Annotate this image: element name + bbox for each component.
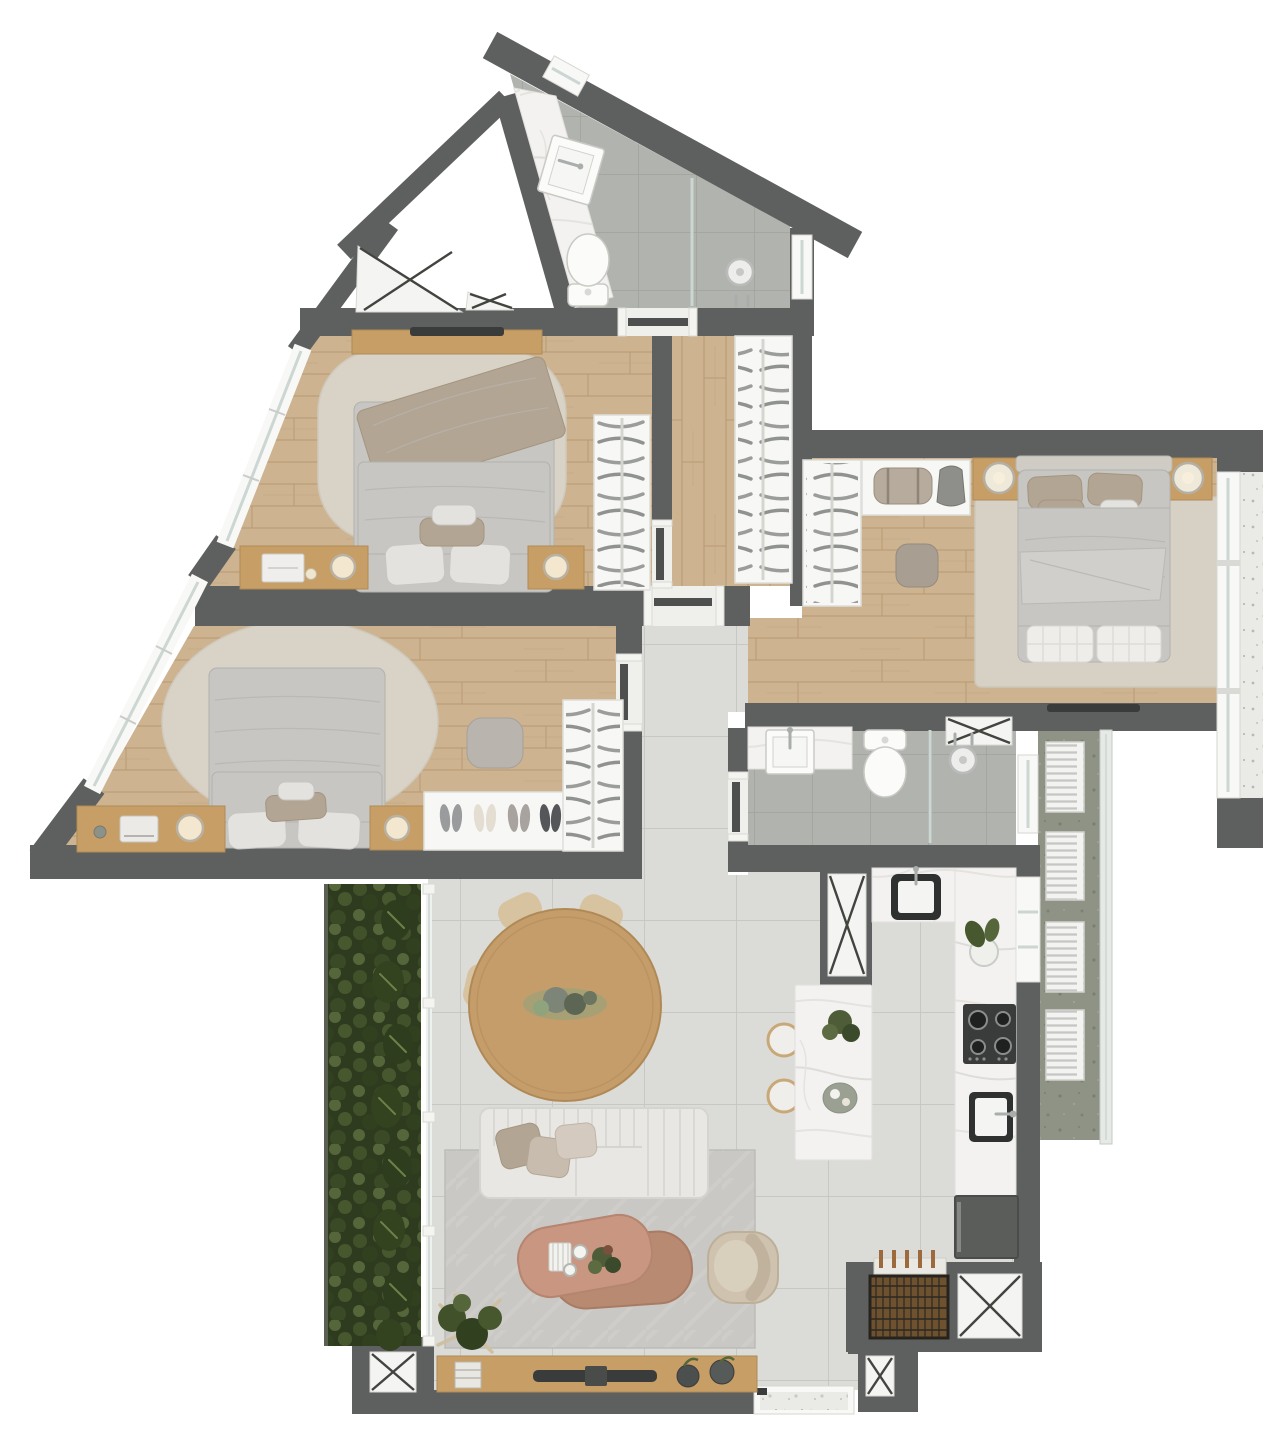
door-bathroom-middle bbox=[728, 772, 748, 841]
shaft-triangle-small bbox=[466, 292, 514, 310]
vanity-desk bbox=[77, 806, 225, 852]
sofa bbox=[480, 1108, 708, 1198]
window-bathroom-middle bbox=[1018, 755, 1038, 833]
vase bbox=[94, 826, 106, 838]
nightstand-right bbox=[370, 806, 425, 850]
door-bathroom-top bbox=[618, 308, 697, 336]
backpack bbox=[937, 466, 965, 506]
closet-shelf bbox=[862, 460, 970, 515]
island-tray bbox=[823, 1083, 857, 1113]
grill-grate bbox=[870, 1276, 948, 1338]
desk bbox=[240, 546, 368, 589]
ac-condenser-unit bbox=[1046, 922, 1084, 992]
armchair bbox=[708, 1232, 778, 1303]
toilet bbox=[567, 234, 609, 306]
ac-condenser-unit bbox=[1046, 832, 1084, 900]
island-counter bbox=[795, 985, 872, 1160]
ottoman bbox=[467, 718, 523, 768]
wall-diagonal-2 bbox=[344, 98, 506, 252]
sofa-pillow bbox=[554, 1122, 597, 1160]
corridor-wardrobe bbox=[735, 336, 792, 583]
pillow bbox=[385, 542, 446, 586]
wall-right-bottom-chunk bbox=[1217, 798, 1263, 848]
tap-mark bbox=[757, 1388, 767, 1395]
vase bbox=[710, 1360, 734, 1384]
shoe-tray bbox=[424, 792, 566, 850]
table-lamp bbox=[544, 555, 568, 579]
vanity-sink bbox=[766, 727, 814, 774]
table-lamp bbox=[331, 555, 355, 579]
gas-cooktop bbox=[963, 1004, 1016, 1064]
vase bbox=[677, 1365, 699, 1387]
wardrobe bbox=[594, 415, 650, 590]
duffel-bag bbox=[874, 468, 932, 504]
ac-condenser-unit bbox=[1046, 742, 1084, 812]
ac-condenser-unit bbox=[1046, 1010, 1084, 1080]
shaft-kitchen bbox=[828, 874, 866, 976]
shaft-grill-small bbox=[866, 1356, 894, 1396]
bottle-shelf bbox=[874, 1258, 946, 1274]
tv-console bbox=[437, 1356, 757, 1392]
table-lamp bbox=[177, 815, 203, 841]
shaft-planter bbox=[370, 1352, 416, 1392]
cup bbox=[306, 569, 317, 580]
decor-cup bbox=[564, 1264, 576, 1276]
prep-sink bbox=[891, 866, 941, 920]
wall-bedroom1-right bbox=[652, 336, 672, 524]
floor-plan-page bbox=[0, 0, 1263, 1440]
second-sink bbox=[969, 1092, 1017, 1142]
door-bedroom-1 bbox=[652, 520, 672, 588]
door-corridor-hall bbox=[644, 586, 724, 626]
shaft-grill-large bbox=[958, 1274, 1022, 1338]
toilet bbox=[864, 730, 906, 797]
vertical-garden bbox=[324, 884, 435, 1351]
refrigerator bbox=[955, 1196, 1018, 1258]
wall-band-top-b bbox=[695, 308, 814, 336]
wardrobe bbox=[563, 700, 623, 851]
pillow-mini bbox=[432, 505, 476, 525]
pillow-mini bbox=[278, 782, 314, 800]
window-kitchen-service bbox=[1016, 877, 1040, 982]
master-entry-floor bbox=[748, 618, 802, 704]
jewelry-box bbox=[120, 816, 158, 842]
window-bathroom-top bbox=[792, 235, 812, 299]
wall-tv bbox=[1047, 704, 1140, 712]
wall-right-top-chunk bbox=[1217, 430, 1263, 472]
terrazzo-ledge-right bbox=[1240, 470, 1263, 800]
wardrobe bbox=[803, 460, 861, 606]
ottoman bbox=[896, 544, 938, 587]
decor-cup bbox=[573, 1245, 587, 1259]
pillow bbox=[449, 542, 511, 585]
nightstand-right bbox=[528, 546, 584, 589]
tv-stand bbox=[585, 1366, 607, 1386]
shaft-triangle-large bbox=[356, 246, 462, 312]
barbecue-corner bbox=[870, 1250, 948, 1338]
bed bbox=[209, 668, 385, 850]
floor-plan bbox=[0, 0, 1263, 1440]
wall-bathroom-mid-left-a bbox=[728, 728, 748, 778]
wall-master-top bbox=[797, 430, 1217, 458]
books bbox=[455, 1362, 481, 1388]
wall-tv bbox=[410, 327, 504, 336]
window-living-bottom bbox=[754, 1386, 854, 1414]
window-master-right bbox=[1217, 472, 1240, 798]
table-lamp bbox=[385, 816, 409, 840]
